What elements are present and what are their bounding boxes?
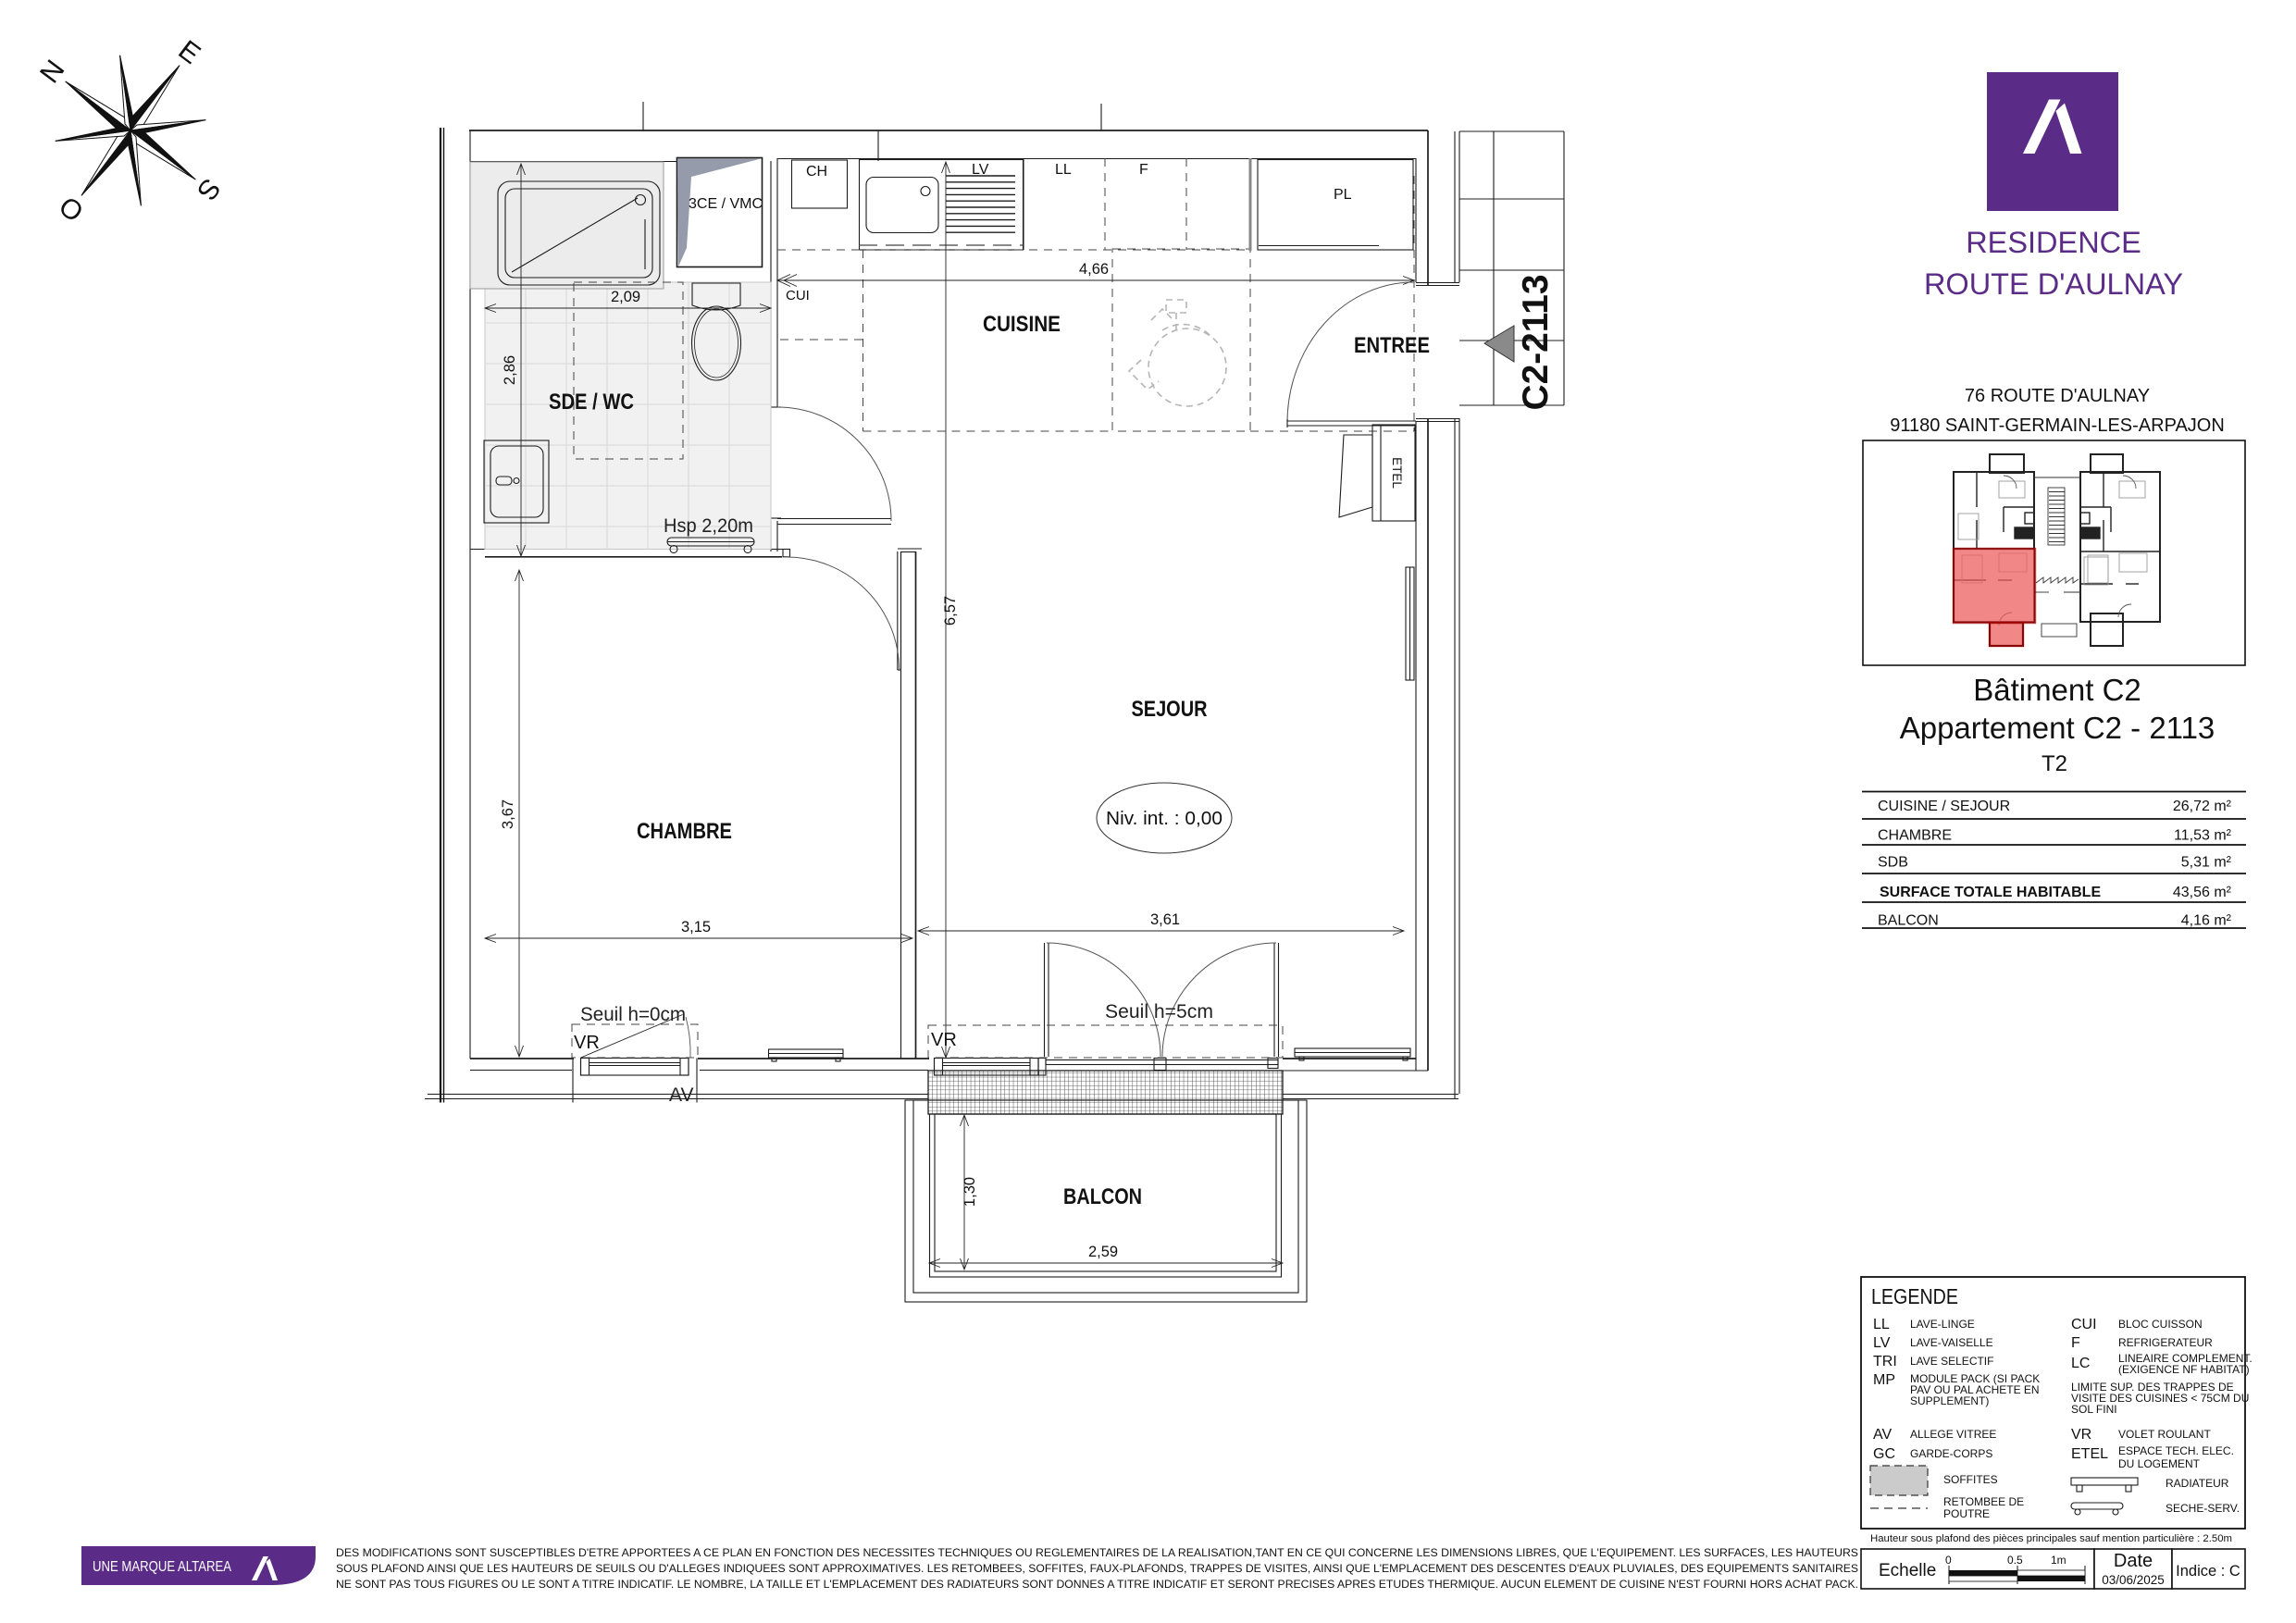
svg-text:LEGENDE: LEGENDE — [1871, 1284, 1958, 1308]
svg-text:CUISINE / SEJOUR: CUISINE / SEJOUR — [1878, 799, 2010, 814]
svg-text:CHAMBRE: CHAMBRE — [637, 819, 732, 844]
svg-text:ETEL: ETEL — [1390, 457, 1404, 489]
svg-text:3,67: 3,67 — [500, 799, 516, 829]
svg-text:RESIDENCE: RESIDENCE — [1966, 226, 2141, 259]
svg-text:4,16 m²: 4,16 m² — [2181, 913, 2232, 929]
svg-text:VR: VR — [574, 1033, 600, 1053]
svg-text:RADIATEUR: RADIATEUR — [2166, 1477, 2229, 1490]
svg-text:ENTREE: ENTREE — [1354, 333, 1430, 358]
svg-text:26,72 m²: 26,72 m² — [2173, 799, 2232, 814]
svg-text:0.5: 0.5 — [2007, 1554, 2023, 1567]
svg-text:Hauteur sous plafond des pièce: Hauteur sous plafond des pièces principa… — [1870, 1533, 2232, 1544]
svg-text:AV: AV — [1873, 1427, 1892, 1443]
svg-text:SDE / WC: SDE / WC — [549, 390, 634, 415]
svg-text:3CE / VMC: 3CE / VMC — [689, 196, 763, 212]
svg-text:VR: VR — [931, 1030, 957, 1050]
svg-text:AV: AV — [669, 1084, 693, 1106]
svg-text:BALCON: BALCON — [1063, 1184, 1142, 1209]
svg-text:BALCON: BALCON — [1878, 913, 1939, 929]
svg-text:Seuil h=5cm: Seuil h=5cm — [1105, 1001, 1213, 1022]
svg-text:CH: CH — [806, 164, 827, 180]
svg-text:CHAMBRE: CHAMBRE — [1878, 828, 1952, 844]
svg-text:VR: VR — [2071, 1427, 2091, 1443]
svg-text:LAVE SELECTIF: LAVE SELECTIF — [1910, 1355, 1993, 1368]
svg-text:DES MODIFICATIONS SONT SUSCEPT: DES MODIFICATIONS SONT SUSCEPTIBLES D'ET… — [336, 1546, 1858, 1559]
svg-text:Seuil h=0cm: Seuil h=0cm — [580, 1004, 686, 1025]
svg-text:SDB: SDB — [1878, 855, 1908, 871]
svg-text:RETOMBEE DE: RETOMBEE DE — [1943, 1495, 2024, 1508]
svg-text:POUTRE: POUTRE — [1943, 1507, 1990, 1520]
svg-text:43,56 m²: 43,56 m² — [2173, 885, 2232, 900]
svg-text:UNE MARQUE ALTAREA: UNE MARQUE ALTAREA — [93, 1559, 232, 1575]
svg-text:Date: Date — [2114, 1551, 2153, 1571]
svg-text:ROUTE D'AULNAY: ROUTE D'AULNAY — [1924, 267, 2183, 301]
svg-text:LV: LV — [1873, 1335, 1891, 1351]
svg-text:TRI: TRI — [1873, 1354, 1897, 1369]
svg-text:GC: GC — [1873, 1446, 1895, 1462]
svg-text:LV: LV — [972, 162, 989, 178]
svg-text:Bâtiment C2: Bâtiment C2 — [1973, 673, 2141, 707]
svg-text:GARDE-CORPS: GARDE-CORPS — [1910, 1447, 1992, 1460]
svg-text:6,57: 6,57 — [942, 596, 959, 626]
svg-text:ESPACE TECH. ELEC.: ESPACE TECH. ELEC. — [2118, 1444, 2234, 1457]
svg-text:SEJOUR: SEJOUR — [1132, 697, 1208, 722]
svg-text:SUPPLEMENT): SUPPLEMENT) — [1910, 1394, 1989, 1407]
svg-text:4,66: 4,66 — [1079, 261, 1109, 278]
svg-text:F: F — [1139, 162, 1148, 178]
svg-text:SECHE-SERV.: SECHE-SERV. — [2166, 1502, 2240, 1515]
svg-text:LAVE-LINGE: LAVE-LINGE — [1910, 1318, 1975, 1331]
svg-text:11,53 m²: 11,53 m² — [2174, 828, 2232, 844]
svg-text:2,86: 2,86 — [502, 355, 518, 385]
svg-text:CUI: CUI — [786, 288, 810, 304]
svg-text:LC: LC — [2071, 1356, 2090, 1371]
svg-text:LL: LL — [1055, 162, 1072, 178]
svg-text:SOUS PLAFOND AINSI QUE LES HAU: SOUS PLAFOND AINSI QUE LES HAUTEURS DE S… — [336, 1562, 1858, 1575]
svg-text:ALLEGE VITREE: ALLEGE VITREE — [1910, 1428, 1996, 1441]
svg-text:SURFACE TOTALE HABITABLE: SURFACE TOTALE HABITABLE — [1880, 885, 2101, 900]
svg-text:BLOC CUISSON: BLOC CUISSON — [2118, 1318, 2203, 1331]
svg-text:VOLET ROULANT: VOLET ROULANT — [2118, 1428, 2211, 1441]
svg-text:CUISINE: CUISINE — [983, 312, 1061, 337]
svg-text:LL: LL — [1873, 1317, 1890, 1332]
svg-text:Indice : C: Indice : C — [2176, 1563, 2240, 1580]
svg-text:CUI: CUI — [2071, 1317, 2097, 1332]
svg-text:76 ROUTE D'AULNAY: 76 ROUTE D'AULNAY — [1965, 386, 2150, 406]
svg-text:NE SONT PAS TOUS FIGURES OU LE: NE SONT PAS TOUS FIGURES OU LE SONT A TI… — [336, 1578, 1858, 1591]
svg-text:REFRIGERATEUR: REFRIGERATEUR — [2118, 1336, 2213, 1349]
svg-text:MP: MP — [1873, 1372, 1895, 1388]
svg-text:DU LOGEMENT: DU LOGEMENT — [2118, 1457, 2201, 1470]
svg-text:03/06/2025: 03/06/2025 — [2102, 1573, 2165, 1587]
svg-text:PL: PL — [1334, 187, 1352, 203]
svg-text:1m: 1m — [2051, 1554, 2066, 1567]
svg-text:T2: T2 — [2042, 751, 2067, 776]
svg-text:2,59: 2,59 — [1088, 1244, 1118, 1260]
svg-text:LAVE-VAISELLE: LAVE-VAISELLE — [1910, 1336, 1993, 1349]
svg-text:F: F — [2071, 1335, 2080, 1351]
svg-text:3,61: 3,61 — [1150, 911, 1180, 928]
svg-text:Hsp 2,20m: Hsp 2,20m — [664, 515, 753, 537]
svg-text:SOL FINI: SOL FINI — [2071, 1403, 2117, 1416]
svg-text:C2-2113: C2-2113 — [1516, 275, 1556, 411]
svg-text:91180 SAINT-GERMAIN-LES-ARPAJO: 91180 SAINT-GERMAIN-LES-ARPAJON — [1890, 415, 2225, 436]
svg-text:ETEL: ETEL — [2071, 1446, 2108, 1462]
svg-text:(EXIGENCE NF HABITAT): (EXIGENCE NF HABITAT) — [2118, 1363, 2250, 1376]
svg-text:1,30: 1,30 — [962, 1177, 978, 1207]
svg-text:3,15: 3,15 — [681, 919, 711, 935]
svg-text:Echelle: Echelle — [1879, 1561, 1936, 1580]
svg-text:0: 0 — [1945, 1554, 1952, 1567]
svg-text:5,31 m²: 5,31 m² — [2181, 855, 2232, 871]
svg-text:SOFFITES: SOFFITES — [1943, 1473, 1998, 1486]
svg-text:2,09: 2,09 — [611, 289, 640, 305]
svg-text:Niv. int. : 0,00: Niv. int. : 0,00 — [1106, 809, 1222, 829]
svg-text:Appartement C2 - 2113: Appartement C2 - 2113 — [1900, 711, 2215, 745]
